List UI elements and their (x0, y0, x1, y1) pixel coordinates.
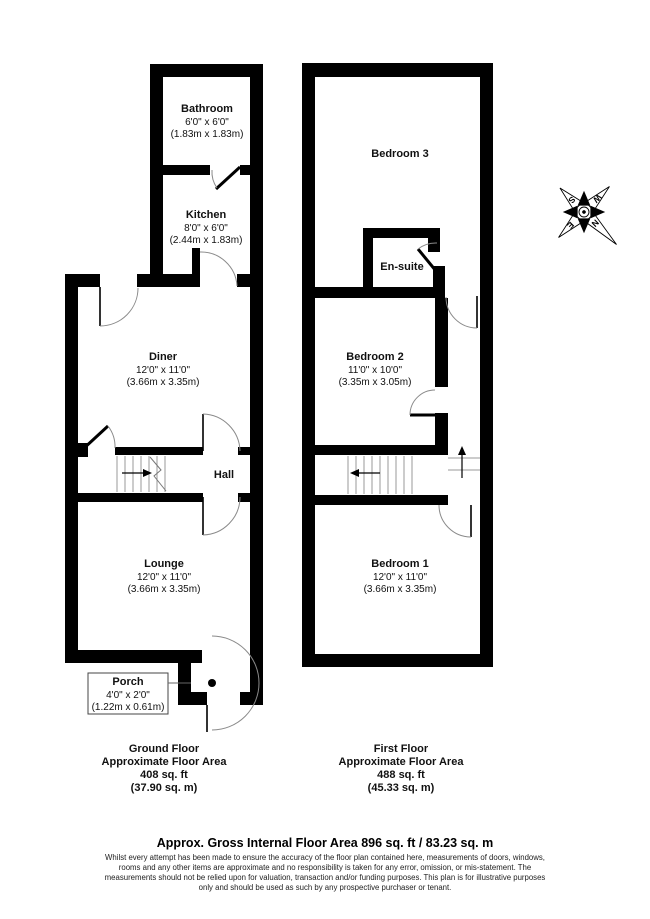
bathroom-label: Bathroom (181, 103, 233, 115)
kitchen-dims-m: (2.44m x 1.83m) (170, 235, 243, 246)
bedroom2-door (410, 390, 435, 415)
bathroom-door (212, 167, 240, 189)
footer-title: Approx. Gross Internal Floor Area 896 sq… (157, 836, 493, 850)
ground-floor-caption-line1: Ground Floor (129, 743, 200, 755)
hall-upper-door (203, 414, 240, 451)
porch-callout: Porch 4'0" x 2'0" (1.22m x 0.61m) (88, 673, 191, 714)
first-floor-caption-line3: 488 sq. ft (377, 769, 425, 781)
kitchen-dims-ft: 8'0" x 6'0" (184, 223, 228, 234)
lounge-dims-ft: 12'0" x 11'0" (137, 572, 192, 583)
front-door-knob (208, 679, 216, 687)
bathroom-dims-m: (1.83m x 1.83m) (171, 129, 244, 140)
bedroom1-label: Bedroom 1 (371, 558, 428, 570)
compass-rose-icon: N S E W (535, 163, 642, 270)
landing-steps (448, 458, 480, 470)
diner-door (100, 287, 138, 326)
diner-dims-m: (3.66m x 3.35m) (127, 377, 200, 388)
kitchen-door (200, 252, 237, 286)
bedroom1-dims-ft: 12'0" x 11'0" (373, 572, 428, 583)
ground-floor-caption: Ground Floor Approximate Floor Area 408 … (102, 743, 228, 794)
first-floor-caption: First Floor Approximate Floor Area 488 s… (339, 743, 465, 794)
bedroom1-door (439, 505, 471, 537)
stairs-direction-arrow (350, 469, 380, 477)
lounge-dims-m: (3.66m x 3.35m) (128, 584, 201, 595)
ground-floor-plan: Bathroom 6'0" x 6'0" (1.83m x 1.83m) Kit… (65, 64, 263, 794)
footer: Approx. Gross Internal Floor Area 896 sq… (105, 836, 546, 892)
porch-dims-m: (1.22m x 0.61m) (92, 702, 165, 713)
hall-label: Hall (214, 469, 234, 481)
first-floor-caption-line4: (45.33 sq. m) (368, 782, 435, 794)
ground-floor-stairs (117, 456, 166, 492)
lounge-label: Lounge (144, 558, 184, 570)
porch-dims-ft: 4'0" x 2'0" (106, 690, 150, 701)
ensuite-label: En-suite (380, 261, 423, 273)
diner-label: Diner (149, 351, 178, 363)
disclaimer-line-2: rooms and any other items are approximat… (119, 863, 531, 872)
ground-floor-caption-line4: (37.90 sq. m) (131, 782, 198, 794)
porch-label: Porch (112, 676, 143, 688)
bedroom2-dims-ft: 11'0" x 10'0" (348, 365, 403, 376)
bedroom3-label: Bedroom 3 (371, 148, 428, 160)
stairs-direction-arrow (122, 469, 152, 477)
bedroom1-dims-m: (3.66m x 3.35m) (364, 584, 437, 595)
kitchen-label: Kitchen (186, 209, 227, 221)
stairs-up-arrow (458, 446, 466, 478)
bedroom2-dims-m: (3.35m x 3.05m) (339, 377, 412, 388)
ground-floor-caption-line3: 408 sq. ft (140, 769, 188, 781)
bathroom-dims-ft: 6'0" x 6'0" (185, 117, 229, 128)
first-floor-caption-line1: First Floor (374, 743, 429, 755)
disclaimer-line-4: only and should be used as such by any p… (199, 883, 452, 892)
bedroom2-label: Bedroom 2 (346, 351, 403, 363)
ground-floor-caption-line2: Approximate Floor Area (102, 756, 228, 768)
diner-dims-ft: 12'0" x 11'0" (136, 365, 191, 376)
floorplan-svg: Bathroom 6'0" x 6'0" (1.83m x 1.83m) Kit… (0, 0, 650, 919)
bedroom3-door (446, 296, 477, 328)
hall-lower-door (203, 497, 240, 535)
first-floor-plan: Bedroom 3 En-suite Bedroom 2 11'0" x 10'… (302, 63, 493, 794)
stairs-break-line (150, 457, 166, 491)
understairs-door (82, 426, 115, 450)
floor-plan-page: Bathroom 6'0" x 6'0" (1.83m x 1.83m) Kit… (0, 0, 650, 919)
first-floor-caption-line2: Approximate Floor Area (339, 756, 465, 768)
disclaimer-line-1: Whilst every attempt has been made to en… (105, 853, 545, 862)
disclaimer-line-3: measurements should not be relied upon f… (105, 873, 546, 882)
